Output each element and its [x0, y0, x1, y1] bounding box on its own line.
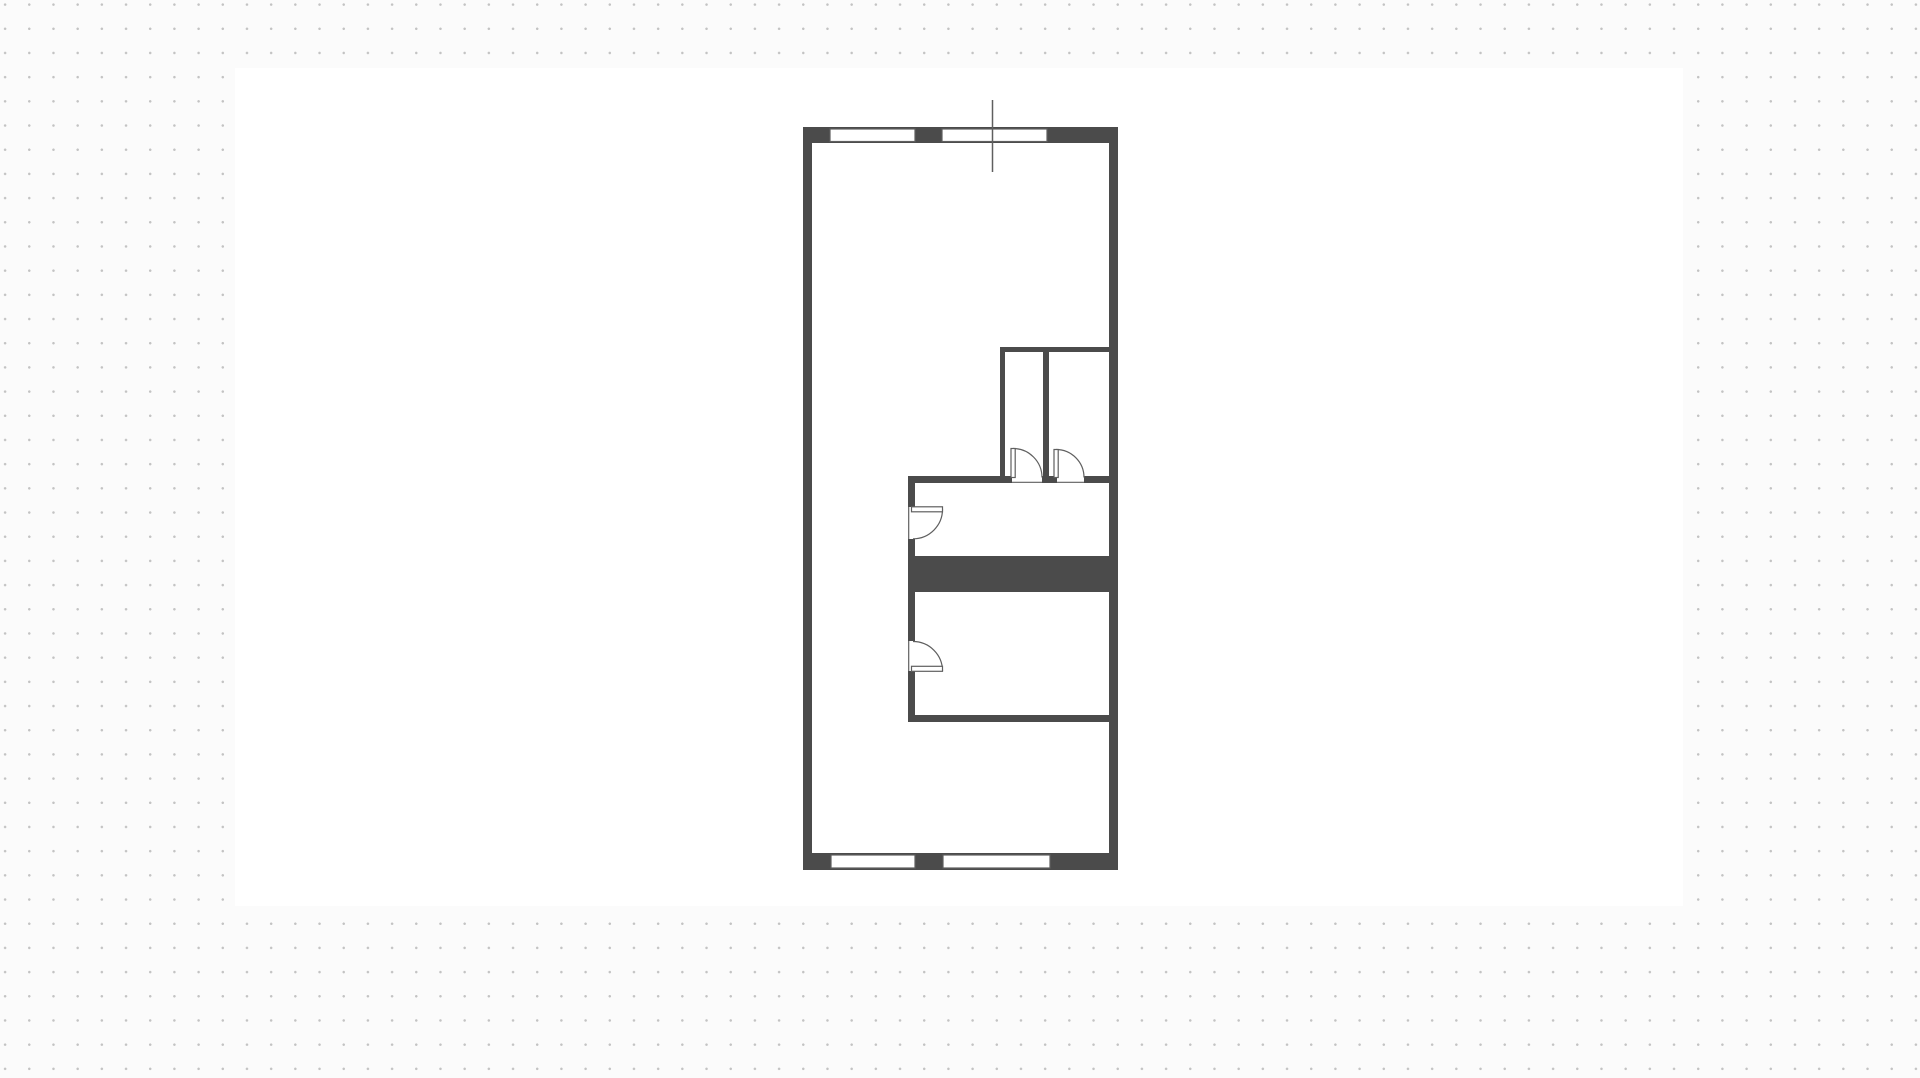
- window-top-left[interactable]: [830, 129, 915, 142]
- grid-background: [0, 0, 1920, 1078]
- window-top-right[interactable]: [942, 129, 1047, 142]
- lower-room-door-leaf: [912, 666, 943, 671]
- interior-left-wall-b[interactable]: [908, 539, 915, 556]
- exterior-left-wall[interactable]: [803, 127, 812, 870]
- lower-room-door[interactable]: [912, 642, 943, 672]
- closet-divider-wall[interactable]: [1043, 352, 1049, 483]
- stair-block[interactable]: [908, 556, 1110, 592]
- lower-room-bottom-wall[interactable]: [908, 715, 1110, 722]
- closet-left-wall[interactable]: [1000, 347, 1005, 483]
- hall-door-swing-arc: [913, 509, 943, 539]
- closet-right-door-swing-arc: [1056, 450, 1084, 478]
- interior-left-wall-a[interactable]: [908, 483, 915, 507]
- closet-right-door[interactable]: [1054, 450, 1084, 478]
- floor-plan: [0, 0, 1920, 1078]
- interior-left-wall-c[interactable]: [908, 592, 915, 641]
- closet-right-doorway[interactable]: [1057, 476, 1084, 484]
- window-bottom-right[interactable]: [943, 855, 1050, 868]
- closet-right-door-leaf: [1054, 450, 1058, 478]
- hall-top-wall-left[interactable]: [908, 476, 1012, 483]
- closet-left-door-swing-arc: [1013, 449, 1042, 478]
- window-bottom-left[interactable]: [831, 855, 915, 868]
- hall-door-leaf: [912, 507, 943, 512]
- closet-top-wall[interactable]: [1000, 347, 1109, 352]
- interior-left-wall-d[interactable]: [908, 671, 915, 715]
- hall-door[interactable]: [912, 507, 943, 539]
- closet-left-door[interactable]: [1011, 449, 1042, 478]
- closet-left-doorway[interactable]: [1012, 476, 1042, 484]
- closet-left-door-leaf: [1011, 449, 1015, 478]
- hall-top-wall-right[interactable]: [1084, 476, 1109, 483]
- exterior-right-wall[interactable]: [1109, 127, 1118, 870]
